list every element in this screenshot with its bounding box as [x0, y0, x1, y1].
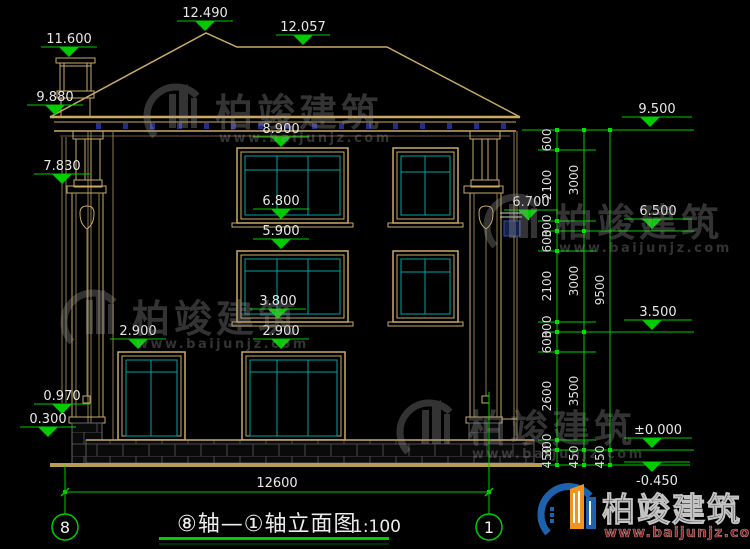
- window-2f-right: [388, 251, 463, 326]
- ground-dim-label: 12600: [256, 476, 297, 491]
- level-label: 9.880: [36, 90, 73, 105]
- watermark-right: 柏竣建筑 www.baijunjz.com: [487, 194, 732, 256]
- level-label: 12.057: [280, 20, 326, 35]
- level-marker-chimney-top: 11.600: [41, 32, 97, 57]
- brand-logo-icon: [541, 484, 596, 533]
- level-label: 11.600: [46, 32, 92, 47]
- level-label: 0.300: [29, 412, 66, 427]
- level-marker-right-neg: -0.450: [624, 462, 690, 489]
- cad-elevation-drawing: 12.490 12.057 11.600 9.880 7.830 8.900 6…: [0, 0, 750, 549]
- watermark-url: www.baijunjz.com: [219, 131, 392, 146]
- dim-label: 3500: [567, 376, 581, 407]
- level-marker-roof-peak: 12.490: [177, 6, 233, 31]
- window-3f-left: [232, 148, 353, 227]
- watermark-brand: 柏竣建筑: [215, 91, 383, 135]
- dim-label: 2100: [540, 170, 554, 201]
- dim-label: 3000: [567, 266, 581, 297]
- watermark-left: 柏竣建筑 www.baijunjz.com: [64, 290, 309, 352]
- level-marker-pier-cap: 0.970: [34, 389, 90, 414]
- axis-bubble-left: 8: [52, 514, 78, 540]
- level-label: 7.830: [43, 159, 80, 174]
- level-marker-roof-ridge: 12.057: [276, 20, 330, 45]
- walls: [62, 131, 517, 440]
- window-1f-right: [242, 352, 345, 440]
- dim-label: 3000: [567, 165, 581, 196]
- level-label: ±0.000: [634, 423, 682, 438]
- level-marker-right-low: 3.500: [624, 305, 692, 330]
- pier-cap: [69, 417, 105, 423]
- level-label: 12.490: [182, 6, 228, 21]
- level-label: -0.450: [636, 474, 678, 489]
- watermark-brand: 柏竣建筑: [132, 297, 300, 341]
- level-label: 5.900: [262, 224, 299, 239]
- window-1f-left: [118, 352, 185, 440]
- dim-label: 2100: [540, 271, 554, 302]
- dim-label: 9500: [593, 275, 607, 306]
- level-marker-right-eave: 9.500: [622, 102, 692, 127]
- drawing-title: ⑧轴—①轴立面图 1:100: [159, 512, 401, 544]
- chimney-cap: [56, 58, 95, 63]
- axis-number: 1: [484, 518, 494, 537]
- watermark-url: www.baijunjz.com: [136, 337, 309, 352]
- drawing-canvas: 12.490 12.057 11.600 9.880 7.830 8.900 6…: [0, 0, 750, 549]
- watermark-url: www.baijunjz.com: [472, 447, 645, 462]
- level-marker-w2-top: 5.900: [253, 224, 309, 249]
- level-marker-eave-top: 9.880: [27, 90, 83, 115]
- axis-bubble-right: 1: [476, 514, 502, 540]
- brand-logo-text: 柏竣建筑: [602, 490, 742, 529]
- brand-logo-url: www.baijunjz.com: [604, 525, 750, 541]
- level-label: 6.800: [262, 194, 299, 209]
- ground-line: [50, 463, 542, 467]
- shield-emblem: [80, 206, 94, 229]
- dim-label: 600: [540, 129, 554, 152]
- title-text: ⑧轴—①轴立面图: [177, 512, 356, 537]
- watermark-brand: 柏竣建筑: [555, 201, 723, 245]
- level-label: 0.970: [43, 389, 80, 404]
- axis-number: 8: [60, 518, 70, 537]
- window-3f-right: [388, 148, 463, 227]
- title-underline: [159, 537, 389, 540]
- dim-label: 600: [540, 230, 554, 253]
- level-label: 9.500: [638, 102, 675, 117]
- dim-label: 600: [540, 331, 554, 354]
- level-label: 3.500: [639, 305, 676, 320]
- watermark-url: www.baijunjz.com: [559, 241, 732, 256]
- watermark-top: 柏竣建筑 www.baijunjz.com: [147, 84, 392, 146]
- column-capital: [470, 131, 500, 139]
- level-marker-base-top: 0.300: [20, 412, 76, 437]
- watermark-brand: 柏竣建筑: [468, 407, 636, 451]
- brand-logo: 柏竣建筑 www.baijunjz.com: [541, 484, 750, 541]
- title-scale: 1:100: [352, 517, 401, 537]
- brick-plinth: [86, 440, 534, 463]
- chimney-frame: [60, 63, 91, 91]
